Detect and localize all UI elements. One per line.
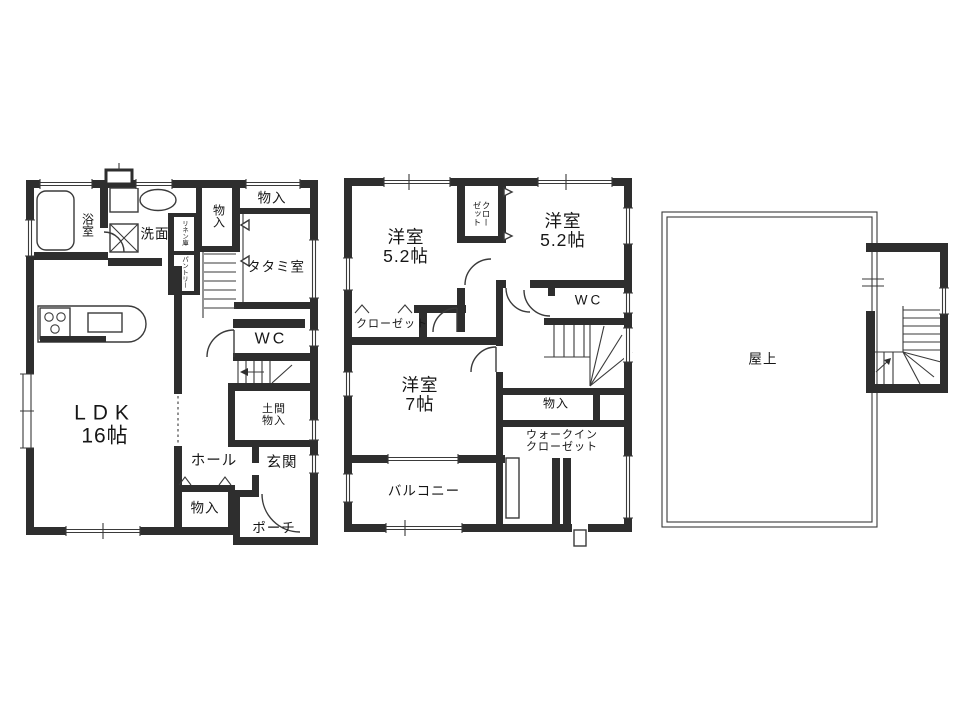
label-1f-wc: WC [255, 330, 288, 347]
label-1f-closet-top-right: 物入 [258, 192, 287, 207]
label-1f-pantry: パントリー [180, 256, 187, 289]
label-2f-walk-in-closet: ウォークイン クローゼット [526, 430, 598, 454]
roof-plan [662, 212, 949, 527]
label-2f-bedroom-right: 洋室 5.2帖 [540, 212, 586, 250]
label-1f-tatami: タタミ室 [247, 261, 305, 276]
label-1f-porch: ポーチ [252, 522, 296, 537]
label-1f-closet-hall: 物入 [191, 502, 220, 517]
label-1f-entrance: 玄関 [267, 456, 298, 472]
floorplan-drawing [0, 0, 960, 720]
label-1f-doma: 土間 物入 [262, 404, 286, 428]
label-1f-linen-closet: リネン庫 [180, 220, 187, 246]
label-roof-rooftop: 屋上 [749, 353, 778, 368]
label-1f-hall: ホール [191, 454, 238, 470]
label-2f-bedroom-main: 洋室 7帖 [402, 376, 439, 414]
label-2f-closet-center: クロー ゼット [472, 201, 490, 227]
floorplan-page: 浴室 洗面 リネン庫 パントリー 物入 物入 タタミ室 WC LDK 16帖 土… [0, 0, 960, 720]
label-2f-bedroom-left: 洋室 5.2帖 [383, 228, 429, 266]
label-1f-bath: 浴室 [81, 213, 94, 237]
label-2f-wc: WC [575, 294, 604, 309]
floor1-plan [20, 163, 319, 545]
label-1f-closet-upper: 物入 [212, 204, 225, 228]
label-2f-closet-left: クローゼット [356, 319, 428, 331]
label-1f-ldk: LDK 16帖 [74, 402, 136, 447]
label-1f-washroom: 洗面 [141, 228, 170, 243]
label-2f-storage: 物入 [543, 398, 569, 411]
label-2f-balcony: バルコニー [388, 485, 460, 500]
